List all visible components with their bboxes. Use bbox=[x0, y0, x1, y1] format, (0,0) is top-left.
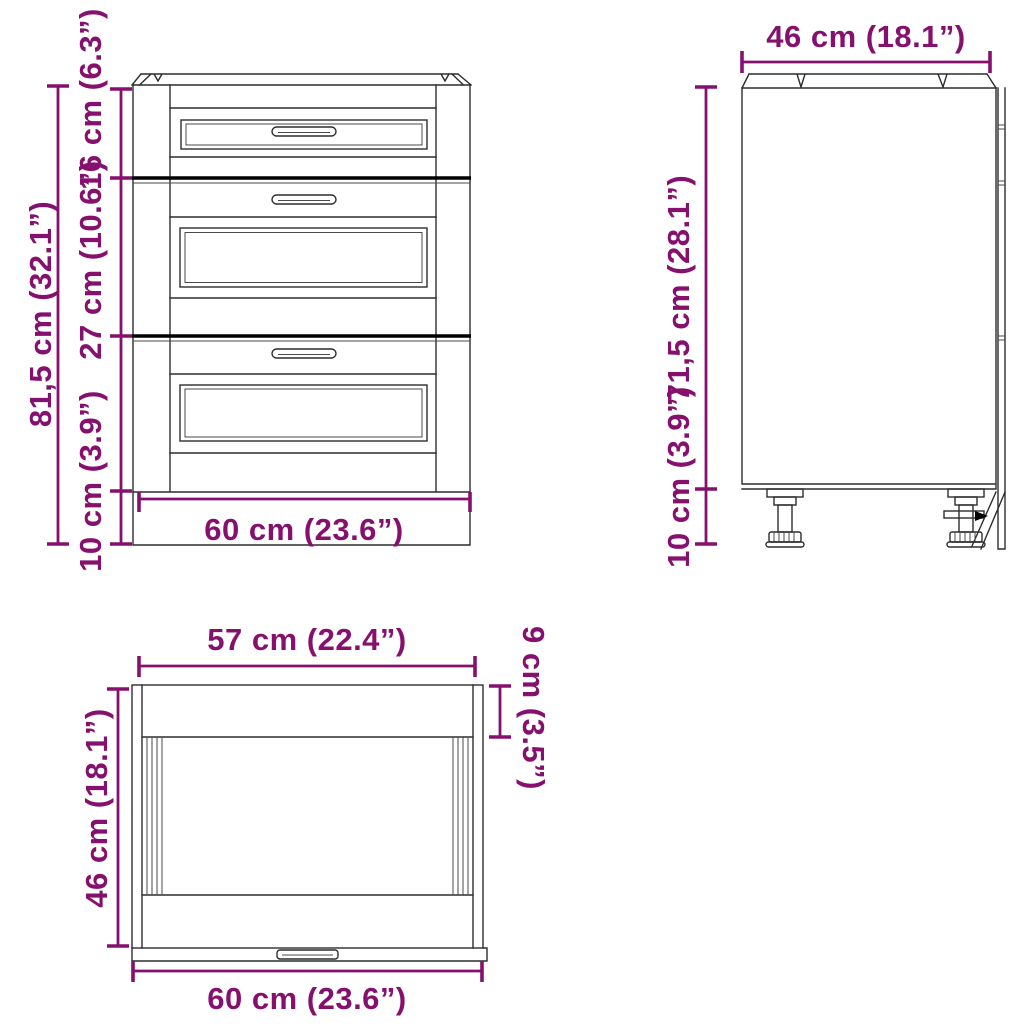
top-side-panels bbox=[142, 685, 473, 948]
side-view: 46 cm (18.1”) 71,5 cm (28.1”) 10 cm (3.9… bbox=[661, 19, 1005, 568]
drawer2-panel-inner bbox=[185, 233, 422, 283]
front-view: 81,5 cm (32.1”) 16 cm (6.3”) 27 cm (10.6… bbox=[23, 8, 471, 572]
front-carcass bbox=[133, 85, 470, 492]
front-drawer-1 bbox=[170, 108, 436, 157]
side-depth-label: 46 cm (18.1”) bbox=[766, 19, 966, 54]
side-leg-height-label: 10 cm (3.9”) bbox=[661, 386, 696, 568]
front-total-height-label: 81,5 cm (32.1”) bbox=[23, 201, 58, 427]
side-carcass bbox=[742, 88, 996, 489]
top-dimensions: 57 cm (22.4”) 9 cm (3.5”) 46 cm (18.1”) … bbox=[79, 622, 551, 1016]
side-leg-bracket-arrow bbox=[975, 511, 988, 521]
front-plinth-label: 10 cm (3.9”) bbox=[73, 390, 108, 572]
drawer2-panel-outer bbox=[180, 228, 427, 287]
top-front-depth-label: 9 cm (3.5”) bbox=[516, 626, 551, 790]
top-drawer-runners bbox=[147, 737, 468, 895]
top-handle-icon bbox=[277, 950, 338, 959]
side-dimensions: 46 cm (18.1”) 71,5 cm (28.1”) 10 cm (3.9… bbox=[661, 19, 990, 568]
diagram-canvas: 81,5 cm (32.1”) 16 cm (6.3”) 27 cm (10.6… bbox=[0, 0, 1024, 1024]
side-front-panel bbox=[998, 88, 1005, 549]
top-carcass-outline bbox=[132, 685, 483, 948]
side-drawer-gap-marks bbox=[998, 125, 1005, 340]
front-drawer-3 bbox=[170, 349, 436, 453]
drawer3-handle-icon bbox=[272, 349, 336, 358]
cabinet-top-drawing bbox=[132, 685, 487, 961]
cabinet-front-drawing bbox=[132, 74, 471, 545]
side-top-slab bbox=[742, 74, 996, 88]
front-top-slab bbox=[132, 74, 471, 85]
top-depth-label: 46 cm (18.1”) bbox=[79, 708, 114, 908]
front-width-dim-ticks bbox=[139, 492, 470, 512]
front-width-label: 60 cm (23.6”) bbox=[204, 512, 404, 547]
drawer1-handle-icon bbox=[272, 127, 336, 136]
front-dimensions: 81,5 cm (32.1”) 16 cm (6.3”) 27 cm (10.6… bbox=[23, 8, 470, 572]
top-view: 57 cm (22.4”) 9 cm (3.5”) 46 cm (18.1”) … bbox=[79, 622, 551, 1016]
side-leg-left bbox=[766, 489, 804, 547]
top-inner-width-label: 57 cm (22.4”) bbox=[207, 622, 407, 657]
top-bands bbox=[142, 737, 473, 895]
front-middle-drawer-label: 27 cm (10.6”) bbox=[73, 160, 108, 360]
top-width-label: 60 cm (23.6”) bbox=[207, 981, 407, 1016]
cabinet-dimension-diagram: 81,5 cm (32.1”) 16 cm (6.3”) 27 cm (10.6… bbox=[0, 0, 1024, 1024]
drawer3-panel-inner bbox=[185, 389, 422, 437]
cabinet-side-drawing bbox=[742, 74, 1005, 549]
front-drawer-2 bbox=[170, 195, 436, 298]
side-body-height-label: 71,5 cm (28.1”) bbox=[661, 175, 696, 401]
side-leg-right bbox=[944, 489, 988, 547]
drawer3-panel-outer bbox=[180, 385, 427, 441]
drawer2-handle-icon bbox=[272, 195, 336, 204]
drawer2-rails bbox=[170, 217, 436, 298]
